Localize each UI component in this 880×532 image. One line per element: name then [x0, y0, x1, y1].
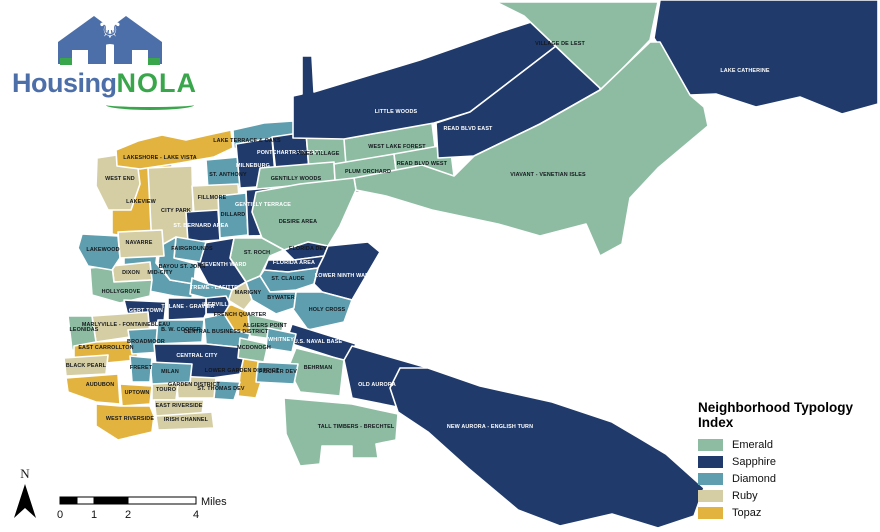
scale-bar-segment-1	[77, 497, 94, 504]
legend-label-diamond: Diamond	[732, 473, 776, 485]
region-west-riverside	[96, 404, 154, 440]
scale-tick-0: 0	[57, 509, 63, 521]
legend-items: EmeraldSapphireDiamondRubyTopaz	[698, 439, 878, 519]
legend-swatch-ruby	[698, 490, 723, 502]
region-st-bernard-area	[186, 210, 220, 242]
legend-label-topaz: Topaz	[732, 507, 761, 519]
region-tulane-gravier	[168, 298, 206, 320]
legend-swatch-sapphire	[698, 456, 723, 468]
north-arrow-label: N	[20, 466, 30, 481]
typology-legend: Neighborhood Typology Index EmeraldSapph…	[698, 400, 878, 524]
scale-tick-4: 4	[193, 509, 199, 521]
legend-item-sapphire: Sapphire	[698, 456, 878, 468]
legend-swatch-emerald	[698, 439, 723, 451]
region-fischer-dev	[256, 362, 298, 384]
region-new-aurora-english-turn	[390, 368, 704, 528]
north-arrow: N	[8, 462, 54, 524]
logo-text-housing: Housing	[12, 68, 117, 98]
legend-label-sapphire: Sapphire	[732, 456, 776, 468]
region-b-w-cooper	[156, 320, 204, 344]
scale-bar: 0124Miles	[52, 488, 292, 528]
logo-green-swoosh	[106, 100, 194, 110]
legend-item-ruby: Ruby	[698, 490, 878, 502]
legend-label-ruby: Ruby	[732, 490, 758, 502]
region-st-claude	[260, 268, 318, 292]
logo-text-nola: NOLA	[117, 68, 198, 98]
scale-bar-segment-2	[94, 497, 128, 504]
scale-bar-segment-3	[128, 497, 196, 504]
scale-unit-label: Miles	[201, 496, 227, 508]
housing-nola-house-fleur-de-lis-icon: ⚜	[10, 6, 210, 72]
logo-wordmark: HousingNOLA	[12, 68, 197, 99]
region-navarre	[118, 230, 164, 258]
region-black-pearl	[64, 355, 108, 376]
region-dixon	[112, 262, 152, 282]
region-irish-channel	[156, 412, 214, 430]
legend-swatch-topaz	[698, 507, 723, 519]
region-lakewood	[78, 234, 120, 270]
legend-item-topaz: Topaz	[698, 507, 878, 519]
scale-tick-1: 1	[91, 509, 97, 521]
housing-nola-logo: ⚜ HousingNOLA	[10, 6, 210, 110]
scale-bar-segment-0	[60, 497, 77, 504]
legend-label-emerald: Emerald	[732, 439, 773, 451]
region-mcdonogh	[238, 338, 268, 362]
region-uptown	[120, 384, 152, 406]
region-milan	[150, 362, 192, 384]
svg-text:⚜: ⚜	[97, 11, 124, 46]
region-holy-cross	[292, 292, 352, 330]
region-dillard	[218, 193, 248, 238]
legend-item-diamond: Diamond	[698, 473, 878, 485]
region-audubon	[66, 374, 120, 404]
region-touro	[152, 382, 178, 400]
north-arrow-glyph	[14, 484, 36, 518]
legend-item-emerald: Emerald	[698, 439, 878, 451]
region-freret	[130, 356, 152, 382]
legend-title: Neighborhood Typology Index	[698, 400, 878, 430]
region-tall-timbers-brechtel	[284, 398, 398, 466]
legend-swatch-diamond	[698, 473, 723, 485]
scale-tick-2: 2	[125, 509, 131, 521]
map-canvas: LAKEVIEWWEST ENDLAKESHORE - LAKE VISTALA…	[0, 0, 880, 532]
region-fairgrounds	[174, 237, 206, 262]
